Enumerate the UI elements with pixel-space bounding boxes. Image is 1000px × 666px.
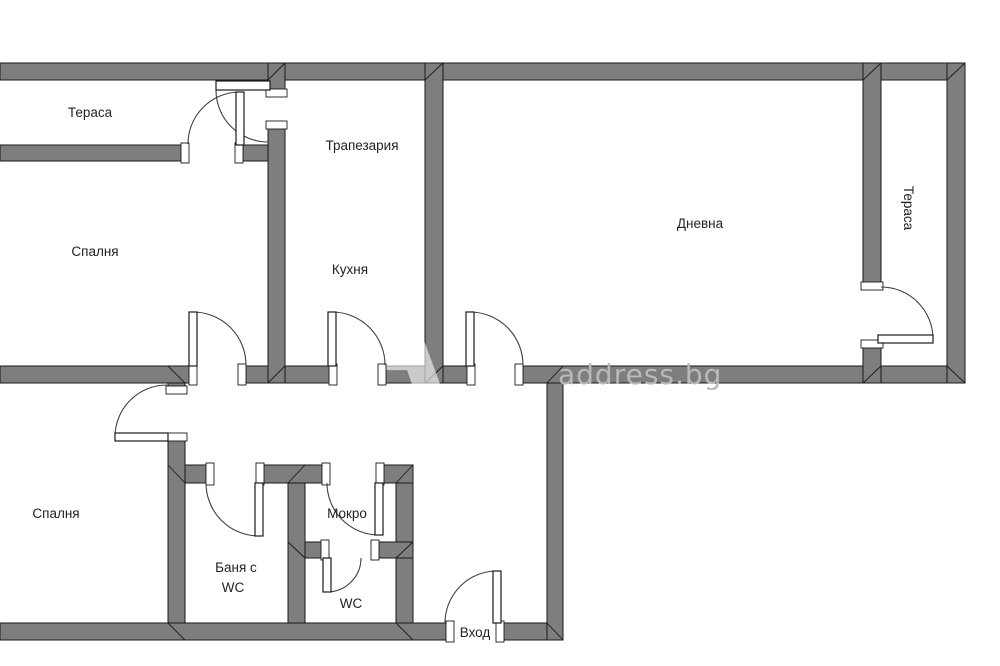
room-label-entrance: Вход: [460, 625, 491, 640]
wall-divider-living-terrace-a: [863, 63, 881, 283]
room-label-wet-room: Мокро: [327, 506, 367, 521]
door-leaf-kitchen: [328, 312, 336, 366]
room-label-bedroom-top: Спалня: [71, 244, 118, 259]
wall-bath-middle: [288, 483, 305, 623]
room-label-kitchen: Кухня: [332, 262, 368, 277]
wall-bath-top-b: [263, 465, 323, 483]
door-leaf-bedroom-top: [189, 312, 197, 366]
wall-hall-right: [547, 383, 563, 640]
door-jamb: [166, 433, 187, 441]
door-jamb: [329, 364, 337, 385]
watermark: A address.bg: [327, 252, 723, 426]
wall-upper-bottom-b: [245, 366, 330, 383]
watermark-brand: address.bg: [558, 358, 722, 391]
door-jamb: [378, 364, 386, 385]
door-jamb: [181, 143, 189, 163]
walls: [0, 63, 965, 640]
door-jamb: [206, 463, 214, 485]
door-leaf-terrace-dining: [216, 81, 270, 90]
door-jamb: [189, 364, 197, 385]
room-label-terrace-right: Тераса: [901, 186, 916, 231]
door-jamb: [321, 540, 329, 560]
door-arc-bathroom: [206, 483, 259, 536]
floor-plan: A address.bg: [0, 0, 1000, 666]
wall-hall-left-b: [168, 440, 185, 640]
door-leaf-wet-room: [375, 483, 383, 535]
door-arc-bedroom-bottom: [115, 385, 167, 437]
door-jamb: [266, 121, 287, 129]
room-label-bedroom-bottom: Спалня: [32, 506, 79, 521]
wall-divider-living-terrace-b: [863, 347, 881, 383]
door-arc-wc: [327, 558, 361, 592]
door-leaf-living-terrace: [878, 335, 933, 343]
door-jamb: [376, 463, 384, 485]
door-jamb: [238, 364, 246, 385]
door-jamb: [446, 621, 454, 642]
room-label-bathroom-line2: WC: [222, 580, 245, 595]
door-arc-entrance: [445, 571, 497, 623]
door-arc-bedroom-top: [193, 312, 246, 365]
wall-upper-bottom-a: [0, 366, 190, 383]
door-leaf-terrace-bedroom: [236, 92, 244, 145]
door-jamb: [256, 463, 264, 485]
room-label-wc: WC: [340, 596, 363, 611]
room-label-dining: Трапезария: [325, 138, 398, 153]
door-arc-living: [470, 312, 523, 365]
room-label-bathroom-line1: Баня с: [215, 560, 257, 575]
door-leaf-bathroom: [255, 483, 263, 536]
door-jamb: [496, 621, 504, 642]
door-arc-living-terrace: [881, 287, 933, 339]
door-arc-terrace-bedroom: [188, 92, 240, 144]
wall-wet-wc-a: [305, 542, 322, 558]
door-jamb: [371, 540, 379, 560]
wall-divider-left-b: [268, 128, 285, 383]
door-leaf-living: [466, 312, 474, 366]
door-jamb: [166, 386, 187, 394]
watermark-logo-letter: A: [327, 252, 443, 426]
door-leaf-wc: [323, 558, 331, 592]
wall-exterior-bottom-a: [0, 623, 447, 640]
room-label-living: Дневна: [677, 216, 724, 231]
door-jamb: [861, 282, 883, 290]
door-leaf-entrance: [493, 571, 501, 623]
door-jamb: [322, 463, 330, 485]
door-jamb: [467, 364, 475, 385]
door-jamb: [515, 364, 523, 385]
wall-exterior-right: [947, 63, 965, 383]
door-jamb: [235, 143, 243, 163]
wall-terrace-bedroom-a: [0, 145, 182, 161]
door-leaf-bedroom-bottom: [115, 433, 168, 441]
room-label-terrace-left: Тераса: [68, 105, 113, 120]
wall-bath-top-a: [185, 465, 207, 483]
wall-exterior-top: [0, 63, 965, 80]
wall-wet-wc-b: [378, 542, 413, 558]
